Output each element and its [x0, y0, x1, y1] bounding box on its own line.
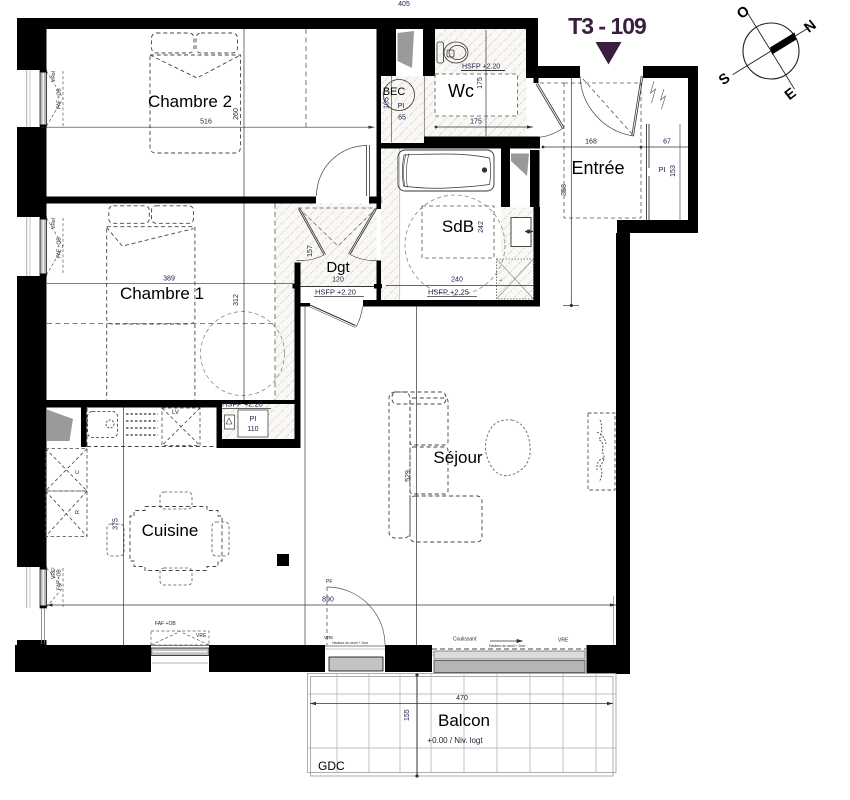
svg-text:PI: PI	[658, 165, 665, 174]
svg-text:FAF +OB: FAF +OB	[155, 621, 176, 627]
svg-text:FAF +OB: FAF +OB	[57, 569, 63, 590]
svg-text:168: 168	[585, 139, 597, 146]
svg-text:67: 67	[663, 139, 671, 146]
svg-text:470: 470	[456, 695, 468, 702]
svg-text:312: 312	[233, 294, 240, 306]
svg-text:HSFP +2.20: HSFP +2.20	[222, 400, 263, 409]
svg-text:Hauteur du seuil + 2cm: Hauteur du seuil + 2cm	[332, 641, 368, 645]
svg-text:VRel: VRel	[51, 71, 57, 82]
svg-text:Cuisine: Cuisine	[142, 521, 199, 540]
svg-text:Chambre 2: Chambre 2	[148, 92, 232, 111]
svg-text:HSFP +2.25: HSFP +2.25	[428, 288, 469, 297]
svg-text:890: 890	[322, 597, 334, 604]
svg-text:358: 358	[561, 184, 568, 196]
svg-text:VRE: VRE	[324, 635, 333, 640]
svg-text:260: 260	[233, 108, 240, 120]
svg-text:153: 153	[670, 165, 677, 177]
svg-text:T3 - 109: T3 - 109	[568, 13, 646, 39]
svg-text:Chambre 1: Chambre 1	[120, 284, 204, 303]
svg-text:PI: PI	[249, 414, 256, 423]
svg-text:120: 120	[332, 277, 344, 284]
svg-text:516: 516	[200, 119, 212, 126]
svg-text:175: 175	[477, 77, 484, 89]
svg-text:110: 110	[247, 426, 258, 433]
svg-text:Balcon: Balcon	[438, 711, 490, 730]
svg-text:157: 157	[307, 245, 314, 257]
svg-text:HSFP +2.20: HSFP +2.20	[315, 288, 356, 297]
svg-text:LV: LV	[172, 410, 179, 416]
svg-text:242: 242	[478, 221, 485, 233]
svg-text:R: R	[75, 510, 81, 514]
svg-text:VRE: VRE	[196, 633, 207, 639]
svg-text:Coulissant: Coulissant	[453, 637, 477, 643]
svg-text:GDC: GDC	[318, 759, 345, 773]
svg-text:375: 375	[113, 518, 120, 530]
svg-text:Entrée: Entrée	[571, 158, 624, 178]
svg-text:Séjour: Séjour	[433, 448, 482, 467]
svg-text:C: C	[75, 470, 81, 474]
svg-text:PI: PI	[397, 101, 404, 110]
svg-text:PF: PF	[326, 579, 332, 585]
svg-text:105: 105	[384, 97, 391, 109]
svg-text:FAF +OB: FAF +OB	[57, 237, 63, 258]
svg-text:SdB: SdB	[442, 217, 474, 236]
svg-text:FAF +OB: FAF +OB	[57, 88, 63, 109]
svg-text:HSFP +2.20: HSFP +2.20	[462, 64, 500, 71]
svg-text:175: 175	[470, 119, 482, 126]
svg-text:Wc: Wc	[448, 81, 474, 101]
svg-text:Hauteur du seuil + 2cm: Hauteur du seuil + 2cm	[489, 644, 525, 648]
svg-text:240: 240	[451, 277, 463, 284]
svg-text:+0.00 / Niv. logt: +0.00 / Niv. logt	[427, 736, 483, 745]
svg-text:405: 405	[398, 1, 410, 8]
svg-text:155: 155	[404, 709, 411, 721]
svg-text:389: 389	[163, 276, 175, 283]
svg-text:65: 65	[398, 115, 406, 122]
svg-text:VRE: VRE	[558, 638, 569, 644]
svg-text:VRel: VRel	[51, 218, 57, 229]
svg-text:Dgt: Dgt	[326, 259, 350, 276]
svg-text:BEC: BEC	[383, 86, 406, 98]
svg-text:529: 529	[405, 470, 412, 482]
